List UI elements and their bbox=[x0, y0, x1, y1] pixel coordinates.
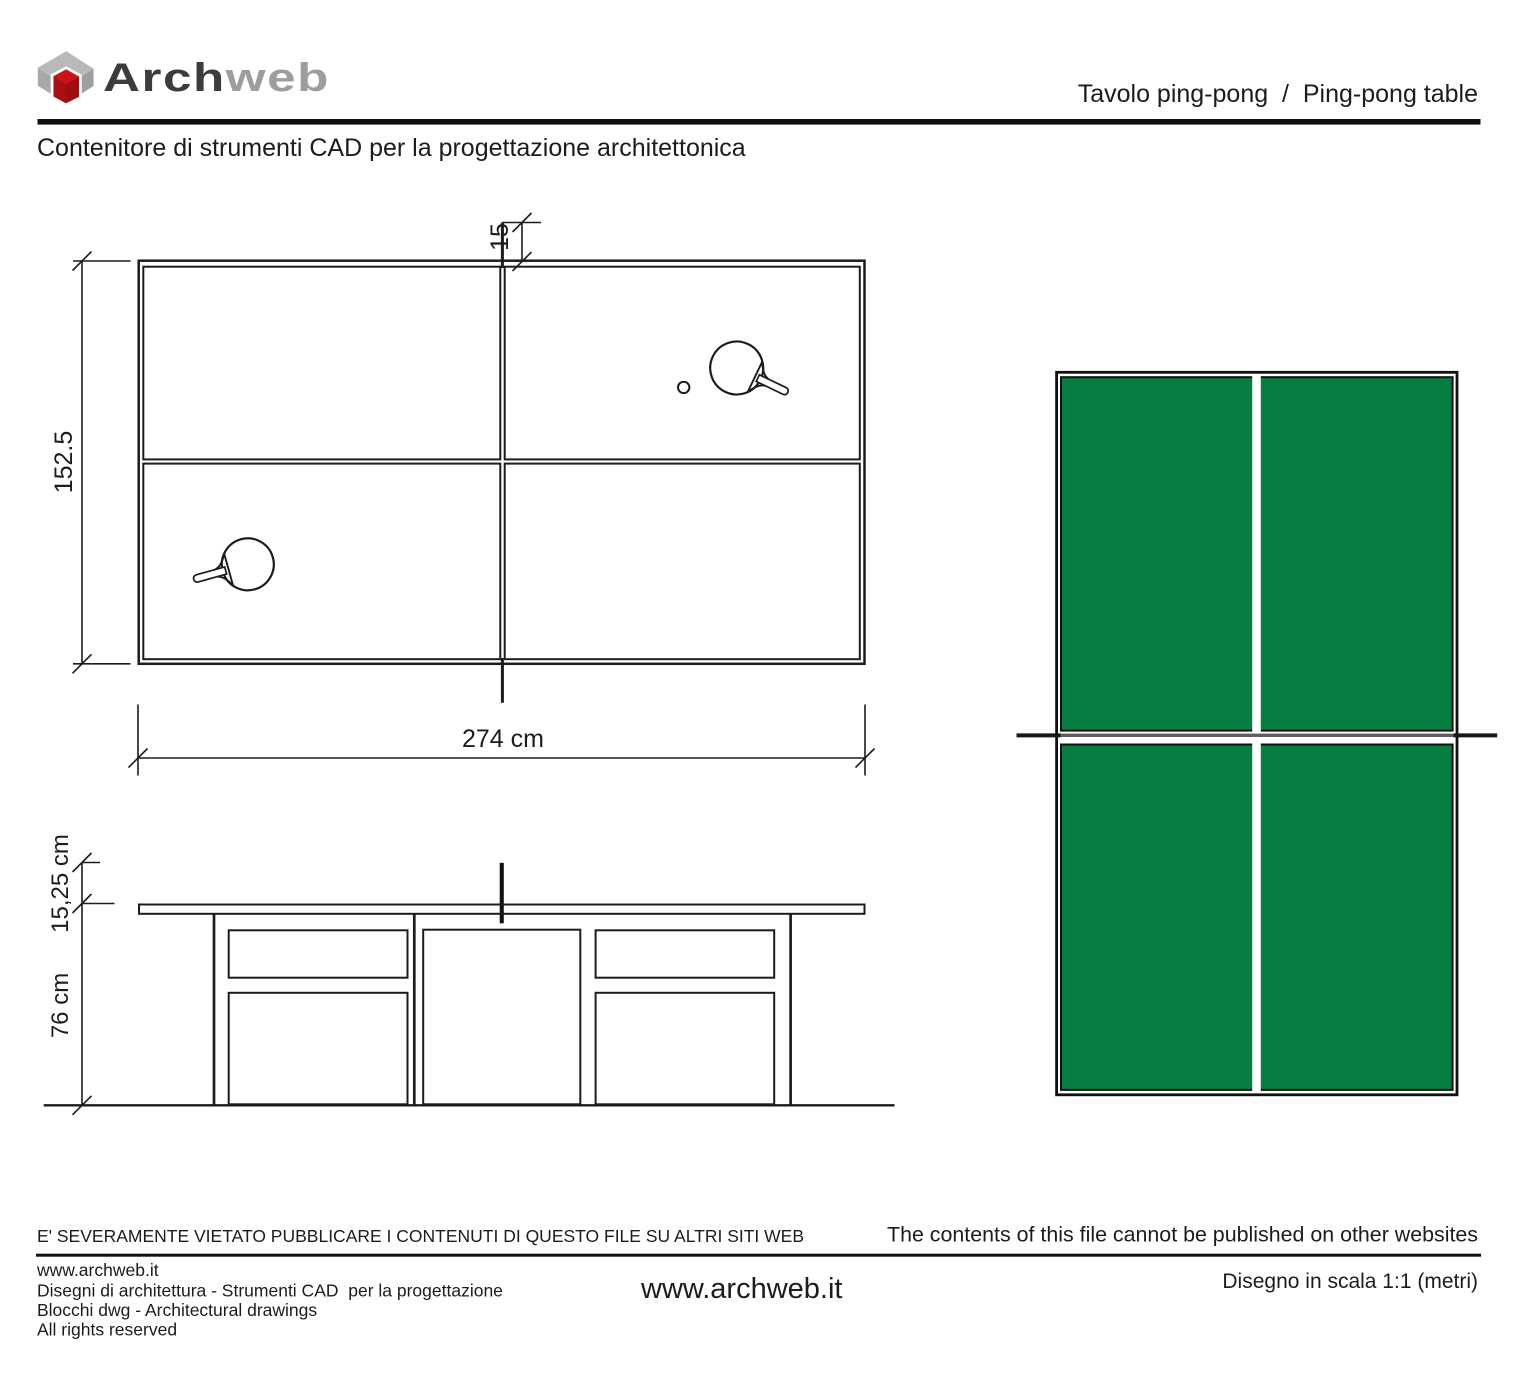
svg-text:152.5: 152.5 bbox=[50, 431, 78, 494]
svg-text:76 cm: 76 cm bbox=[47, 973, 74, 1038]
svg-text:www.archweb.it: www.archweb.it bbox=[36, 1260, 159, 1280]
svg-text:Archweb: Archweb bbox=[103, 54, 330, 99]
svg-text:Blocchi dwg - Architectural dr: Blocchi dwg - Architectural drawings bbox=[37, 1300, 317, 1320]
svg-text:Tavolo ping-pong / Ping-pong: Tavolo ping-pong / Ping-pong table bbox=[1078, 80, 1478, 108]
svg-text:Disegni di architettura - Stru: Disegni di architettura - Strumenti CAD … bbox=[37, 1281, 503, 1301]
svg-text:274 cm: 274 cm bbox=[462, 725, 544, 753]
svg-text:All rights reserved: All rights reserved bbox=[37, 1320, 177, 1340]
svg-text:Contenitore di strumenti CAD p: Contenitore di strumenti CAD per la prog… bbox=[37, 134, 746, 162]
svg-text:15,25 cm: 15,25 cm bbox=[47, 834, 74, 933]
svg-text:E' SEVERAMENTE VIETATO PUBBLIC: E' SEVERAMENTE VIETATO PUBBLICARE I CONT… bbox=[37, 1226, 804, 1246]
svg-text:Disegno in scala 1:1 (metri): Disegno in scala 1:1 (metri) bbox=[1222, 1270, 1478, 1293]
svg-text:www.archweb.it: www.archweb.it bbox=[640, 1273, 842, 1305]
svg-text:15: 15 bbox=[486, 223, 514, 251]
svg-text:The contents of this file cann: The contents of this file cannot be publ… bbox=[887, 1223, 1478, 1247]
